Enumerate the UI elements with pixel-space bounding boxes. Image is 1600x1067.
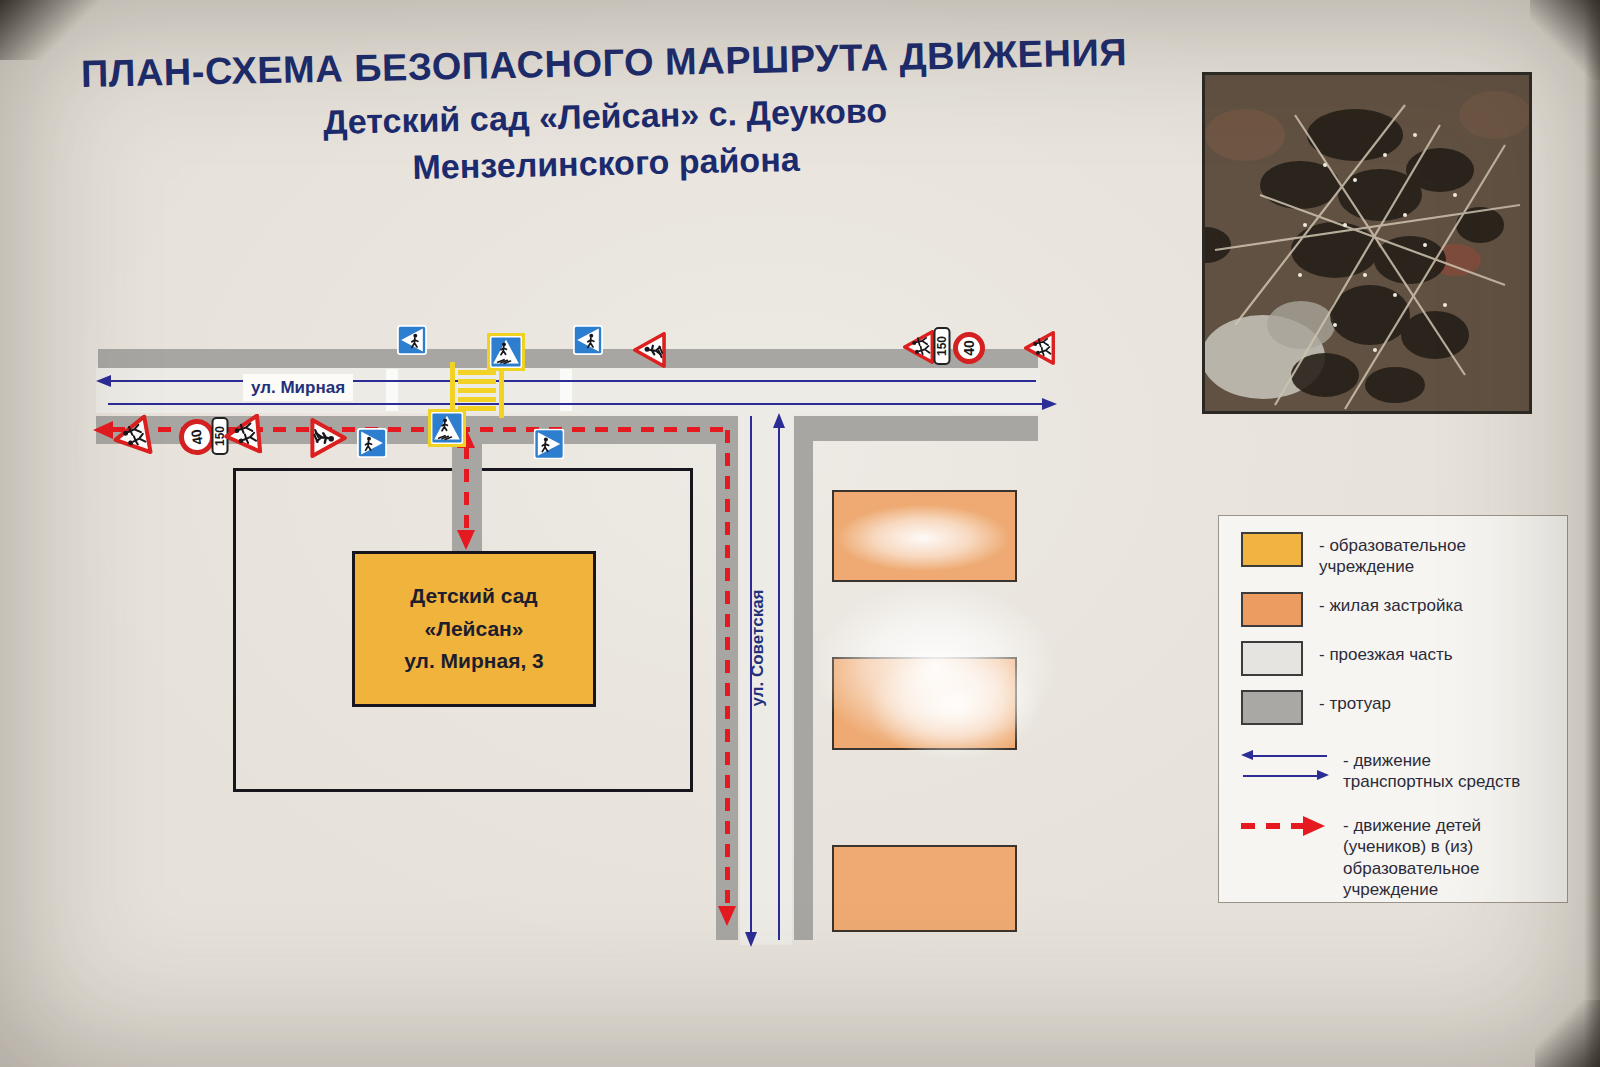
photo-corner-shadow — [1535, 1000, 1600, 1067]
children-warning-sign — [221, 413, 264, 456]
kindergarten-address: ул. Мирная, 3 — [404, 645, 544, 678]
vehicle-traffic-arrows-icon — [1241, 751, 1329, 785]
children-route-arrow-south-icon — [718, 906, 736, 926]
lane-line-northbound — [778, 428, 780, 940]
sidewalk-sovetskaya-east — [794, 441, 813, 940]
residential-building-2 — [832, 657, 1017, 750]
pedestrian-crossing-sign — [357, 428, 387, 458]
arrow-east-icon — [1042, 398, 1057, 410]
pedestrian-crossing-zebra — [450, 364, 504, 414]
arrow-north-icon — [773, 413, 785, 428]
children-warning-sign — [109, 414, 155, 460]
residential-building-1 — [832, 490, 1017, 582]
kindergarten-name-line2: «Лейсан» — [425, 613, 524, 646]
arrow-west-icon — [96, 375, 111, 387]
sidewalk-south-east — [794, 416, 1038, 441]
arrow-south-icon — [745, 932, 757, 947]
legend: - образовательное учреждение - жилая зас… — [1218, 515, 1568, 903]
photo-corner-shadow — [1530, 0, 1600, 80]
children-route-entrance — [464, 446, 469, 532]
zebra-stripe — [458, 388, 496, 393]
education-swatch — [1241, 532, 1303, 567]
pedestrian-crossing-sign — [397, 325, 427, 355]
photo-edge-shadow — [1584, 0, 1600, 1067]
pedestrian-warning-sign — [632, 332, 668, 368]
legend-label: - жилая застройка — [1319, 592, 1463, 616]
residential-swatch — [1241, 592, 1303, 627]
distance-plate-sign: 150 — [934, 327, 951, 365]
legend-red-arrowhead-icon — [1303, 816, 1325, 836]
pedestrian-crossing-sign-yellow — [487, 333, 525, 371]
legend-label: - образовательное учреждение — [1319, 532, 1466, 578]
legend-label: - тротуар — [1319, 690, 1391, 714]
legend-item-education: - образовательное учреждение — [1241, 532, 1567, 578]
children-route-arrow-down-icon — [457, 530, 475, 550]
sidewalk-north — [98, 349, 1038, 368]
pedestrian-crossing-sign — [534, 429, 565, 460]
children-route-arrow-icon — [1241, 816, 1329, 836]
speed-limit-sign: 40 — [953, 332, 985, 364]
legend-item-sidewalk: - тротуар — [1241, 690, 1567, 725]
photo-corner-shadow — [0, 0, 110, 60]
zebra-stripe — [458, 397, 496, 402]
zebra-stripe — [458, 379, 496, 384]
children-route-vertical — [725, 430, 730, 906]
legend-red-dashes — [1241, 823, 1303, 829]
plan-schema-board: ПЛАН-СХЕМА БЕЗОПАСНОГО МАРШРУТА ДВИЖЕНИЯ… — [0, 0, 1600, 1067]
legend-arrow-left-icon — [1241, 750, 1253, 760]
legend-item-roadway: - проезжая часть — [1241, 641, 1567, 676]
legend-label: - движение детей (учеников) в (из) образ… — [1343, 812, 1481, 900]
legend-arrow-right-icon — [1317, 770, 1329, 780]
legend-item-children-route: - движение детей (учеников) в (из) образ… — [1241, 812, 1567, 900]
kindergarten-name-line1: Детский сад — [410, 580, 537, 613]
pedestrian-crossing-sign — [573, 325, 603, 355]
lane-line-eastbound — [108, 403, 1042, 405]
residential-building-3 — [832, 845, 1017, 932]
legend-label: - проезжая часть — [1319, 641, 1453, 665]
sidewalk-swatch — [1241, 690, 1303, 725]
page-title: ПЛАН-СХЕМА БЕЗОПАСНОГО МАРШРУТА ДВИЖЕНИЯ… — [0, 29, 1211, 195]
street-label-sovetskaya: ул. Советская — [748, 589, 768, 706]
kindergarten-building: Детский сад «Лейсан» ул. Мирная, 3 — [352, 551, 596, 707]
children-warning-sign — [902, 330, 936, 364]
satellite-photo — [1202, 72, 1532, 414]
legend-line — [1243, 775, 1319, 777]
roadway-swatch — [1241, 641, 1303, 676]
street-label-mirnaya: ул. Мирная — [243, 374, 353, 401]
pedestrian-crossing-sign-yellow — [428, 409, 466, 447]
legend-label: - движение транспортных средств — [1343, 747, 1520, 793]
legend-item-residential: - жилая застройка — [1241, 592, 1567, 627]
pedestrian-warning-sign — [308, 418, 348, 458]
children-warning-sign — [1023, 331, 1057, 365]
legend-line — [1251, 755, 1327, 757]
satellite-image — [1205, 75, 1529, 411]
legend-item-vehicle-traffic: - движение транспортных средств — [1241, 747, 1567, 793]
